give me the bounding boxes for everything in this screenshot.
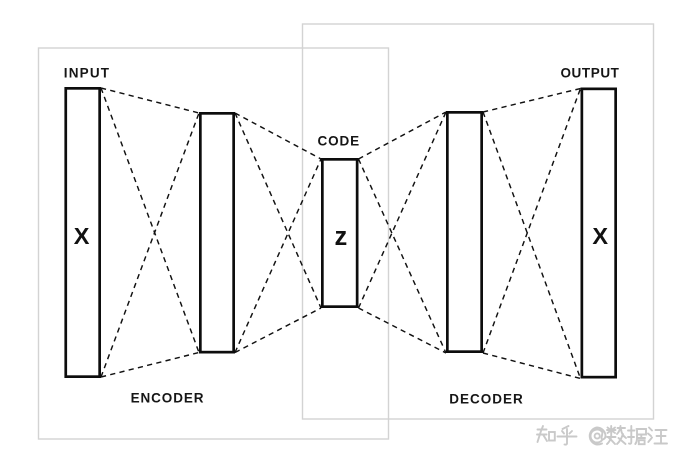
svg-text:OUTPUT: OUTPUT bbox=[560, 66, 619, 81]
svg-text:ENCODER: ENCODER bbox=[131, 391, 205, 406]
svg-text:X: X bbox=[592, 223, 608, 249]
svg-text:INPUT: INPUT bbox=[64, 66, 111, 81]
svg-text:X: X bbox=[74, 223, 90, 249]
svg-text:z: z bbox=[335, 223, 348, 251]
svg-text:CODE: CODE bbox=[317, 134, 360, 149]
svg-text:DECODER: DECODER bbox=[449, 392, 524, 407]
